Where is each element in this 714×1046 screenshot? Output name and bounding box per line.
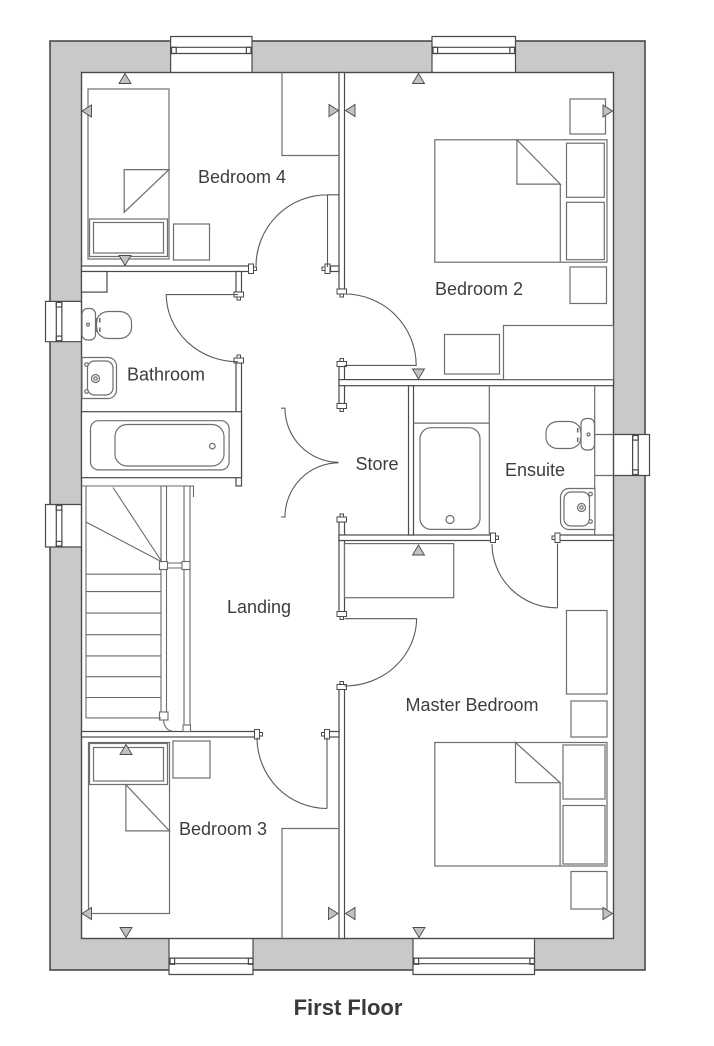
svg-text:Master Bedroom: Master Bedroom (405, 695, 538, 715)
svg-text:Bedroom 4: Bedroom 4 (198, 167, 286, 187)
svg-text:Bedroom 2: Bedroom 2 (435, 279, 523, 299)
svg-text:Landing: Landing (227, 597, 291, 617)
svg-text:Bathroom: Bathroom (127, 365, 205, 385)
svg-text:First Floor: First Floor (294, 995, 403, 1020)
svg-text:Bedroom 3: Bedroom 3 (179, 819, 267, 839)
svg-text:Store: Store (355, 454, 398, 474)
svg-text:Ensuite: Ensuite (505, 460, 565, 480)
